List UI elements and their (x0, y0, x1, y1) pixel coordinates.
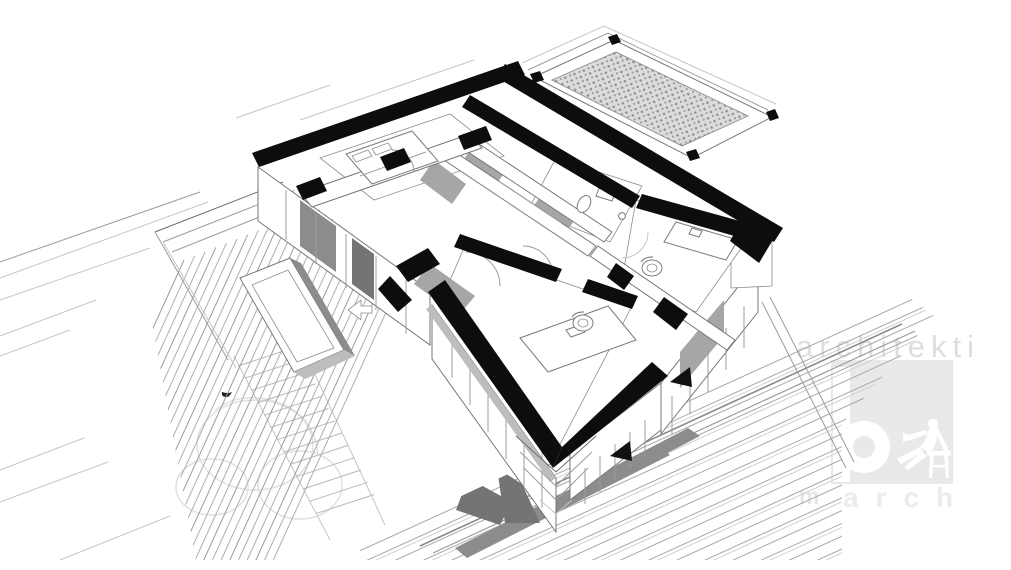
deck-plank (73, 247, 215, 560)
architectural-rendering-page: architekti m arch (0, 0, 1011, 570)
stair-step-line (264, 396, 322, 415)
stair-step-line (271, 409, 329, 428)
deck-plank (65, 252, 205, 560)
stair-step-line (258, 384, 316, 403)
deck-plank (56, 256, 194, 560)
stair-step-line (303, 470, 361, 489)
watermark-caption: arch (843, 482, 970, 513)
deck-plank (360, 509, 958, 570)
stair-step-line (316, 495, 374, 514)
watermark-studio-text: architekti (796, 329, 980, 364)
cutaway-floorplan-rendering: architekti m arch (0, 0, 1011, 570)
deck-plank (82, 243, 226, 560)
deck-plank (91, 239, 237, 560)
deck-plank (47, 260, 184, 560)
deck-direction-arrow-outline (348, 300, 372, 320)
stair-step-line (290, 445, 348, 464)
